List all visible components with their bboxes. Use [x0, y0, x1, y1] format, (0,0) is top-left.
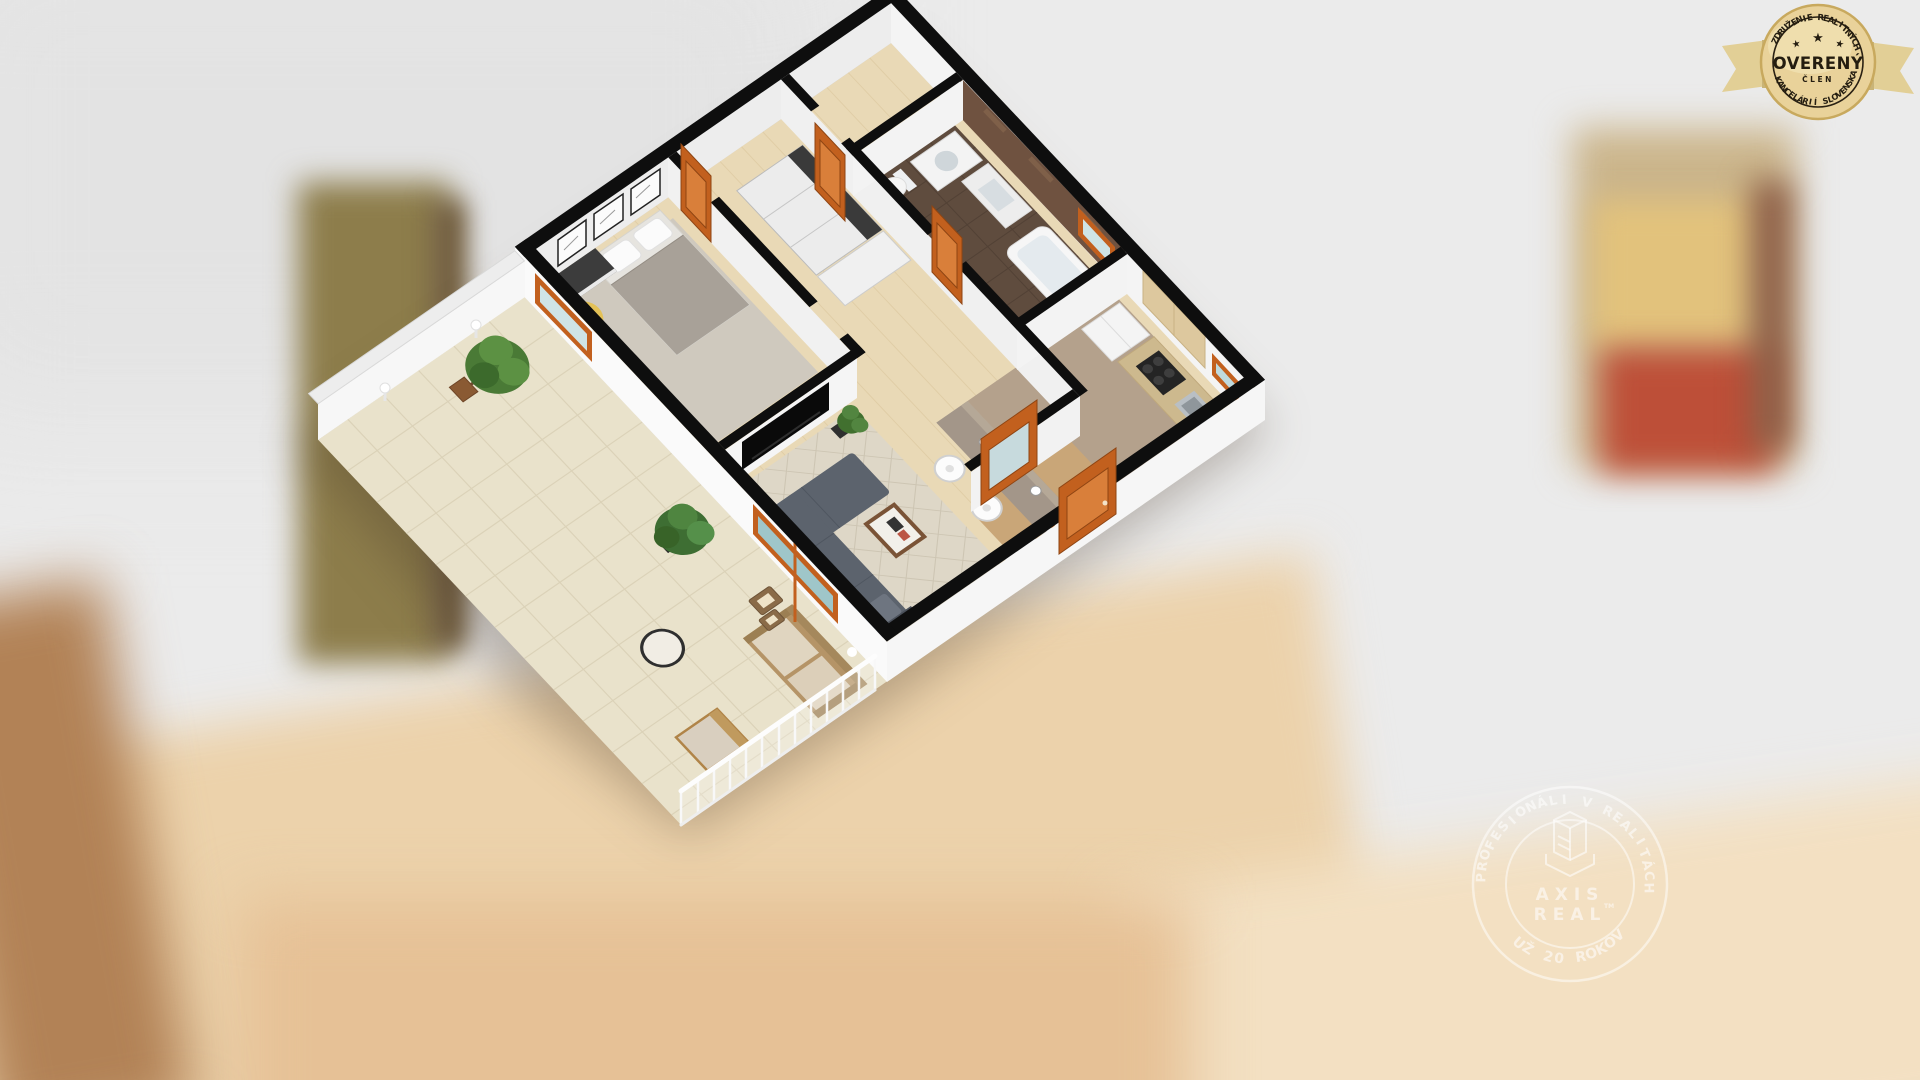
wall-lamp-icon	[847, 647, 857, 657]
wall-lamp-icon	[380, 383, 390, 393]
badge-subtitle: ČLEN	[1802, 75, 1834, 84]
watermark-brand-top: AXIS	[1536, 885, 1605, 905]
certification-badge: ZDRUŽENIE REALITNÝCH KANCELÁRIÍ SLOVENSK…	[1722, 4, 1914, 120]
axis-real-building-icon	[1546, 812, 1594, 876]
render-overlay: ZDRUŽENIE REALITNÝCH KANCELÁRIÍ SLOVENSK…	[0, 0, 1920, 1080]
star-icon: ★	[1812, 31, 1824, 46]
door-handle	[1103, 501, 1108, 506]
watermark-trademark: TM	[1604, 903, 1614, 910]
wall-lamp-icon	[471, 320, 481, 330]
badge-title: OVERENÝ	[1773, 54, 1864, 73]
watermark-brand-bottom: REAL	[1534, 905, 1607, 925]
real-estate-render: ZDRUŽENIE REALITNÝCH KANCELÁRIÍ SLOVENSK…	[0, 0, 1920, 1080]
floor-plan	[309, 0, 1265, 825]
agency-watermark: PROFESIONÁLI V REALITÁCH UŽ 20 ROKOV AXI…	[1473, 787, 1667, 981]
